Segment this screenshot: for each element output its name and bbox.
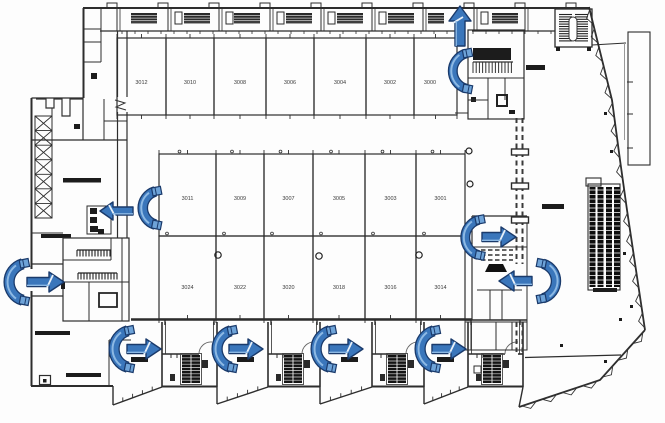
- svg-text:3016: 3016: [384, 285, 396, 291]
- svg-text:3020: 3020: [282, 285, 294, 291]
- svg-text:3024: 3024: [181, 285, 193, 291]
- svg-text:3007: 3007: [282, 196, 294, 202]
- svg-text:3011: 3011: [182, 196, 194, 202]
- svg-text:3002: 3002: [384, 80, 396, 86]
- svg-text:3008: 3008: [234, 80, 246, 86]
- svg-text:3012: 3012: [135, 80, 147, 86]
- svg-text:3022: 3022: [234, 285, 246, 291]
- svg-text:3001: 3001: [434, 196, 446, 202]
- svg-text:3010: 3010: [184, 80, 196, 86]
- svg-text:3004: 3004: [334, 80, 346, 86]
- svg-text:3009: 3009: [234, 196, 246, 202]
- svg-text:3003: 3003: [384, 196, 396, 202]
- svg-text:3018: 3018: [333, 285, 345, 291]
- svg-text:3000: 3000: [424, 80, 436, 86]
- svg-text:3006: 3006: [284, 80, 296, 86]
- svg-text:3005: 3005: [333, 196, 345, 202]
- svg-text:3014: 3014: [434, 285, 446, 291]
